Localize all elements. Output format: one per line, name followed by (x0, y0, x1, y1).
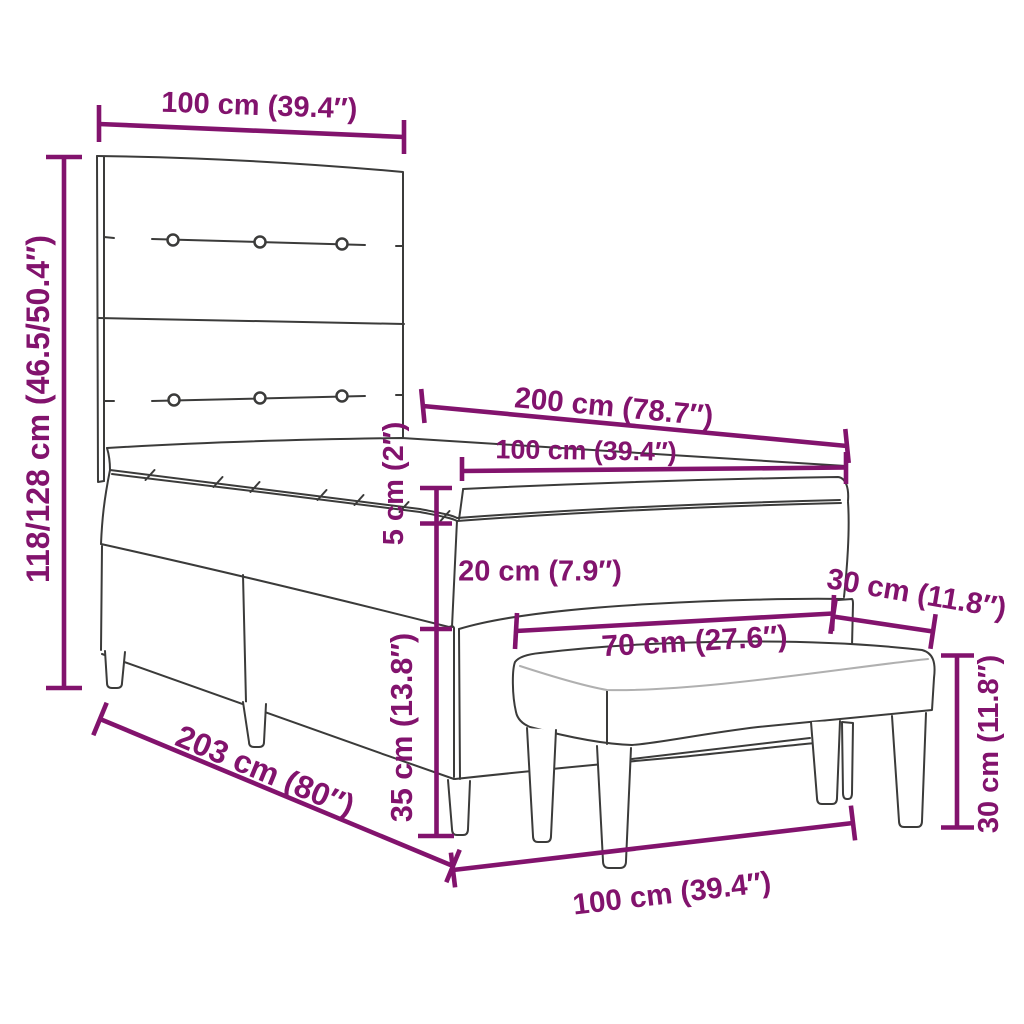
svg-text:20 cm (7.9″): 20 cm (7.9″) (458, 556, 622, 588)
svg-text:100 cm (39.4″): 100 cm (39.4″) (495, 434, 677, 467)
svg-text:5 cm (2″): 5 cm (2″) (378, 422, 410, 546)
svg-text:100 cm (39.4″): 100 cm (39.4″) (161, 87, 358, 126)
svg-text:30 cm (11.8″): 30 cm (11.8″) (973, 655, 1005, 833)
svg-text:118/128 cm (46.5/50.4″): 118/128 cm (46.5/50.4″) (20, 235, 56, 583)
svg-text:35 cm (13.8″): 35 cm (13.8″) (385, 633, 419, 822)
